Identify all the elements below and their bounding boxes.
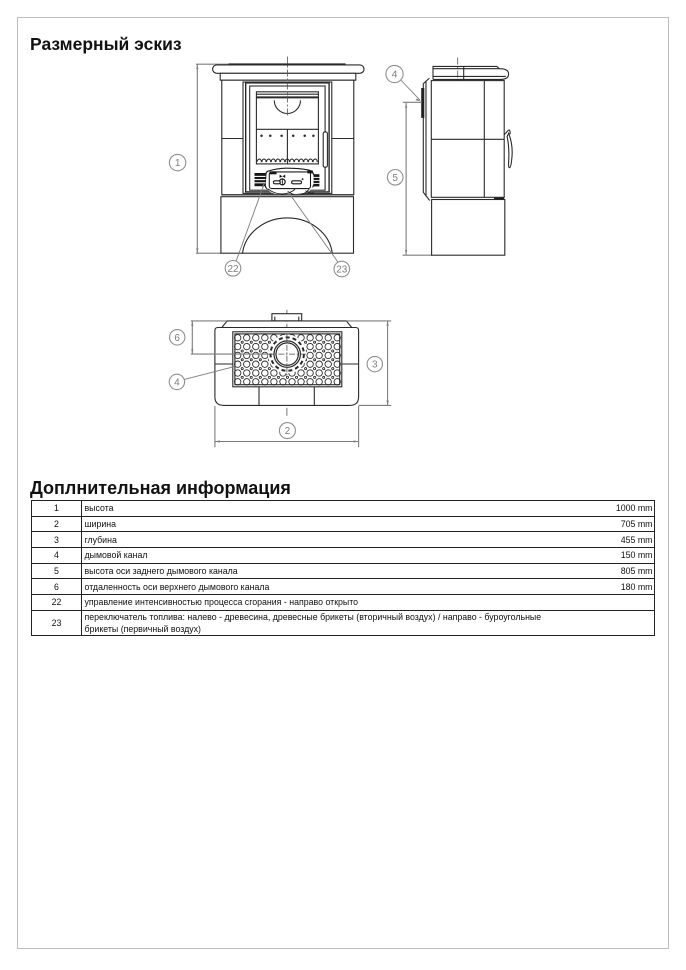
svg-text:1: 1: [175, 158, 181, 169]
svg-text:5: 5: [392, 173, 398, 184]
svg-text:4: 4: [392, 69, 398, 81]
svg-text:22: 22: [227, 264, 239, 275]
svg-text:23: 23: [336, 265, 348, 276]
svg-text:6: 6: [174, 333, 180, 344]
svg-text:2: 2: [285, 426, 291, 437]
svg-text:4: 4: [174, 377, 180, 388]
svg-text:3: 3: [372, 360, 378, 371]
